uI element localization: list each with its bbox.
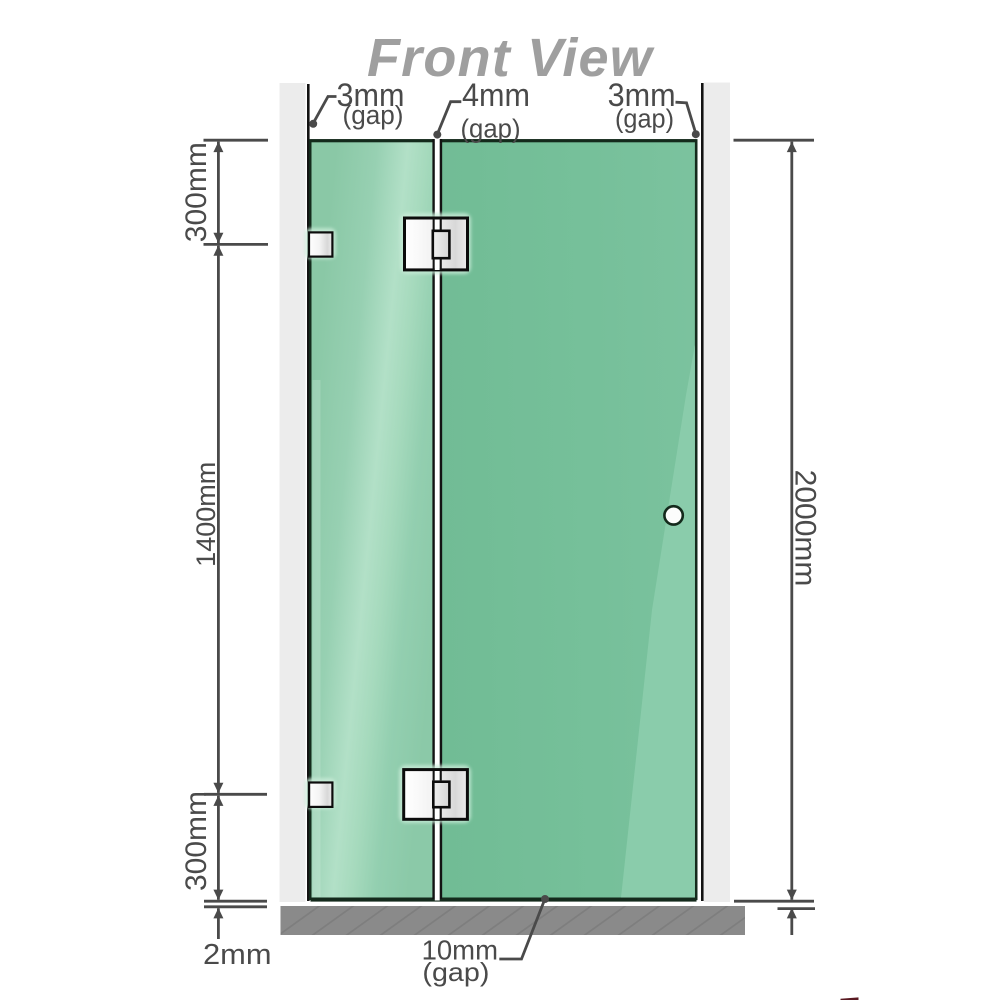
svg-text:2000mm: 2000mm <box>789 470 822 587</box>
svg-text:300mm: 300mm <box>180 142 213 242</box>
svg-text:(gap): (gap) <box>461 116 521 144</box>
svg-text:300mm: 300mm <box>180 791 213 891</box>
svg-text:(gap): (gap) <box>343 102 404 130</box>
svg-text:2mm: 2mm <box>203 939 272 971</box>
svg-text:(gap): (gap) <box>615 106 674 134</box>
svg-text:4mm: 4mm <box>462 77 530 113</box>
svg-text:1400mm: 1400mm <box>191 462 221 567</box>
svg-text:(gap): (gap) <box>422 957 489 987</box>
